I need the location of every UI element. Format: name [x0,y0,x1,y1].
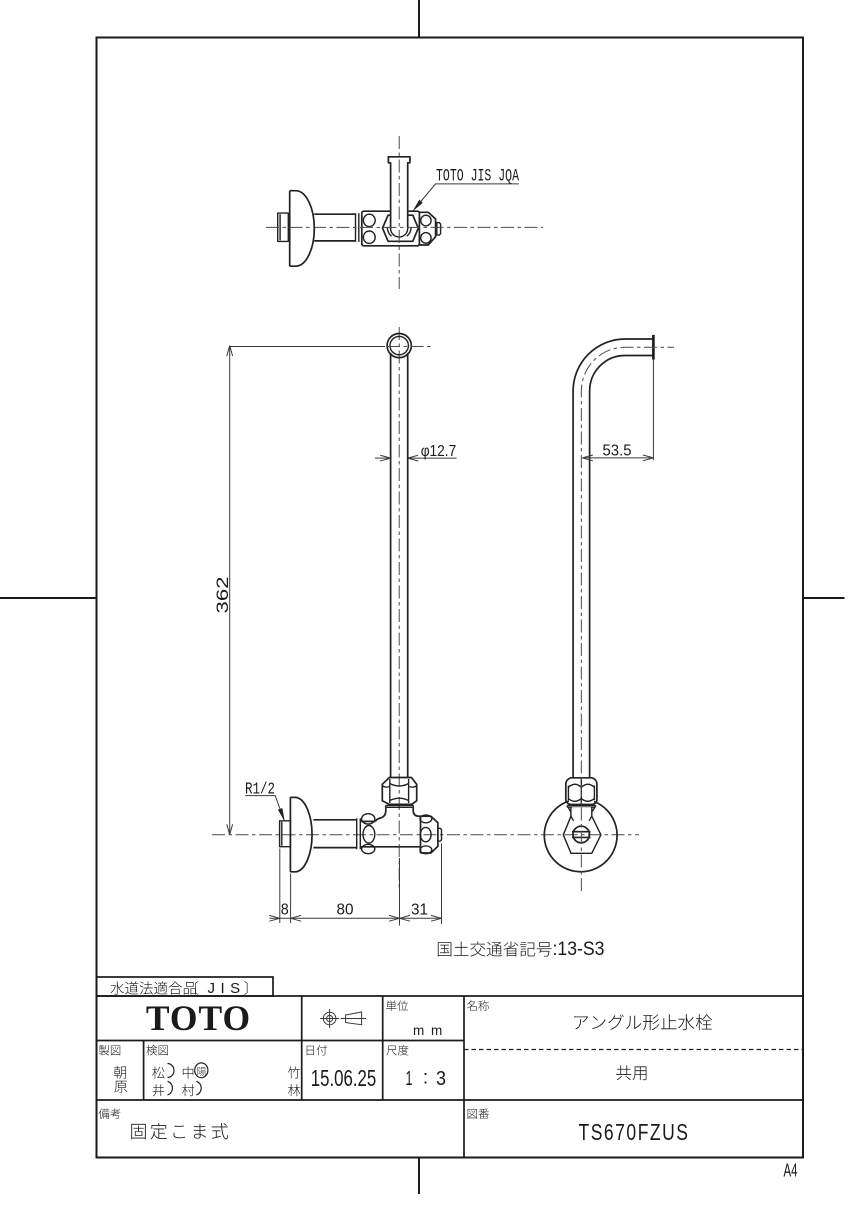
svg-text:362: 362 [213,577,232,614]
svg-text:80: 80 [337,902,354,919]
svg-text:31: 31 [411,902,428,919]
svg-text:m m: m m [413,1023,444,1038]
svg-text:TOTO: TOTO [146,998,251,1038]
svg-text:8: 8 [281,902,289,919]
svg-text:1: 1 [406,1067,413,1090]
svg-text:A4: A4 [784,1160,798,1181]
svg-text:3: 3 [436,1067,446,1090]
svg-text:15.06.25: 15.06.25 [311,1065,377,1091]
svg-text:φ12.7: φ12.7 [421,443,457,460]
svg-text::: : [423,1068,428,1089]
svg-text::13-S3: :13-S3 [553,939,605,960]
svg-text:JIS: JIS [208,980,246,997]
svg-text:TS670FZUS: TS670FZUS [579,1119,690,1145]
svg-text:53.5: 53.5 [603,442,632,459]
